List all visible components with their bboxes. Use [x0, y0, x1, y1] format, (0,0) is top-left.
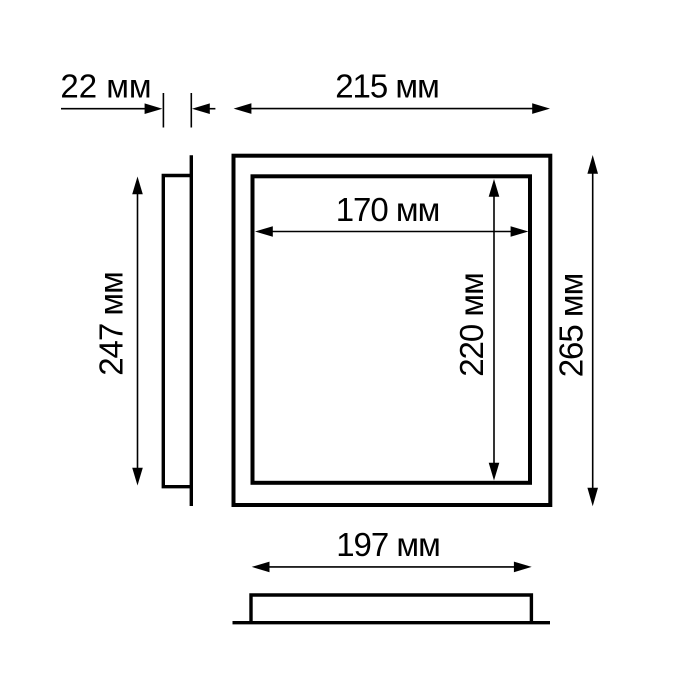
svg-text:22 мм: 22 мм [60, 68, 151, 105]
svg-text:265 мм: 265 мм [553, 274, 590, 378]
svg-text:220 мм: 220 мм [453, 273, 490, 377]
svg-text:197 мм: 197 мм [336, 526, 440, 563]
svg-text:247 мм: 247 мм [93, 272, 130, 376]
svg-text:215 мм: 215 мм [335, 68, 439, 105]
svg-text:170 мм: 170 мм [336, 191, 440, 228]
